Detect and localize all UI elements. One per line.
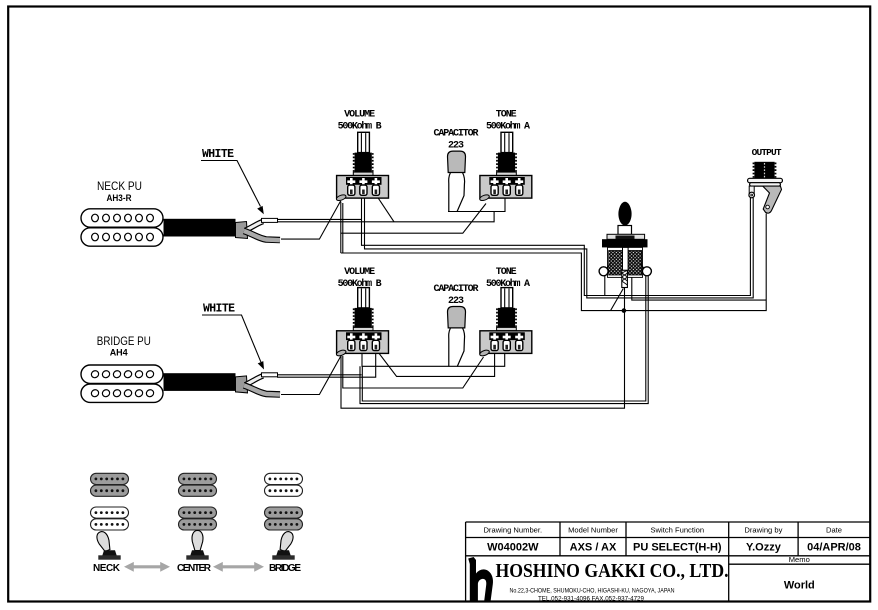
- svg-text:223: 223: [448, 296, 464, 307]
- svg-text:Switch Function: Switch Function: [650, 526, 704, 535]
- svg-text:AH4: AH4: [110, 348, 128, 358]
- svg-text:Drawing Number.: Drawing Number.: [483, 526, 542, 535]
- svg-text:World: World: [784, 580, 815, 592]
- svg-text:VOLUME: VOLUME: [344, 267, 375, 278]
- svg-text:HOSHINO GAKKI CO., LTD.: HOSHINO GAKKI CO., LTD.: [496, 561, 729, 582]
- svg-text:500Kohm A: 500Kohm A: [486, 278, 530, 290]
- svg-text:BRIDGE: BRIDGE: [269, 563, 301, 574]
- svg-text:OUTPUT: OUTPUT: [752, 147, 782, 158]
- svg-text:W04002W: W04002W: [487, 542, 539, 554]
- svg-text:500Kohm A: 500Kohm A: [486, 121, 530, 133]
- svg-text:04/APR/08: 04/APR/08: [807, 542, 861, 554]
- svg-text:Memo: Memo: [789, 555, 810, 564]
- svg-text:WHITE: WHITE: [203, 303, 235, 316]
- svg-text:NECK PU: NECK PU: [97, 181, 142, 193]
- svg-text:223: 223: [448, 140, 464, 151]
- svg-text:AH3-R: AH3-R: [107, 193, 132, 203]
- svg-text:CENTER: CENTER: [177, 563, 212, 574]
- svg-text:CAPACITOR: CAPACITOR: [434, 128, 479, 139]
- svg-text:BRIDGE PU: BRIDGE PU: [97, 336, 151, 348]
- svg-text:CAPACITOR: CAPACITOR: [434, 284, 479, 295]
- svg-text:TONE: TONE: [496, 109, 517, 120]
- svg-text:PU SELECT(H-H): PU SELECT(H-H): [633, 542, 722, 554]
- svg-text:AXS / AX: AXS / AX: [570, 542, 617, 554]
- svg-text:No.22,3-CHOME, SHUMOKU-CHO, HI: No.22,3-CHOME, SHUMOKU-CHO, HIGASHI-KU, …: [510, 588, 675, 595]
- svg-text:TEL.052-931-4096 FAX.052-937-: TEL.052-931-4096 FAX.052-937-4729: [538, 595, 644, 602]
- svg-text:Date: Date: [826, 526, 842, 535]
- svg-text:TONE: TONE: [496, 267, 517, 278]
- svg-text:Model Number: Model Number: [568, 526, 618, 535]
- svg-text:Y.Ozzy: Y.Ozzy: [746, 542, 782, 554]
- svg-text:NECK: NECK: [93, 563, 121, 574]
- svg-text:500Kohm B: 500Kohm B: [338, 121, 382, 133]
- svg-text:VOLUME: VOLUME: [344, 109, 375, 120]
- svg-text:500Kohm B: 500Kohm B: [338, 278, 382, 290]
- svg-text:Drawing by: Drawing by: [744, 526, 782, 535]
- svg-text:WHITE: WHITE: [202, 148, 234, 161]
